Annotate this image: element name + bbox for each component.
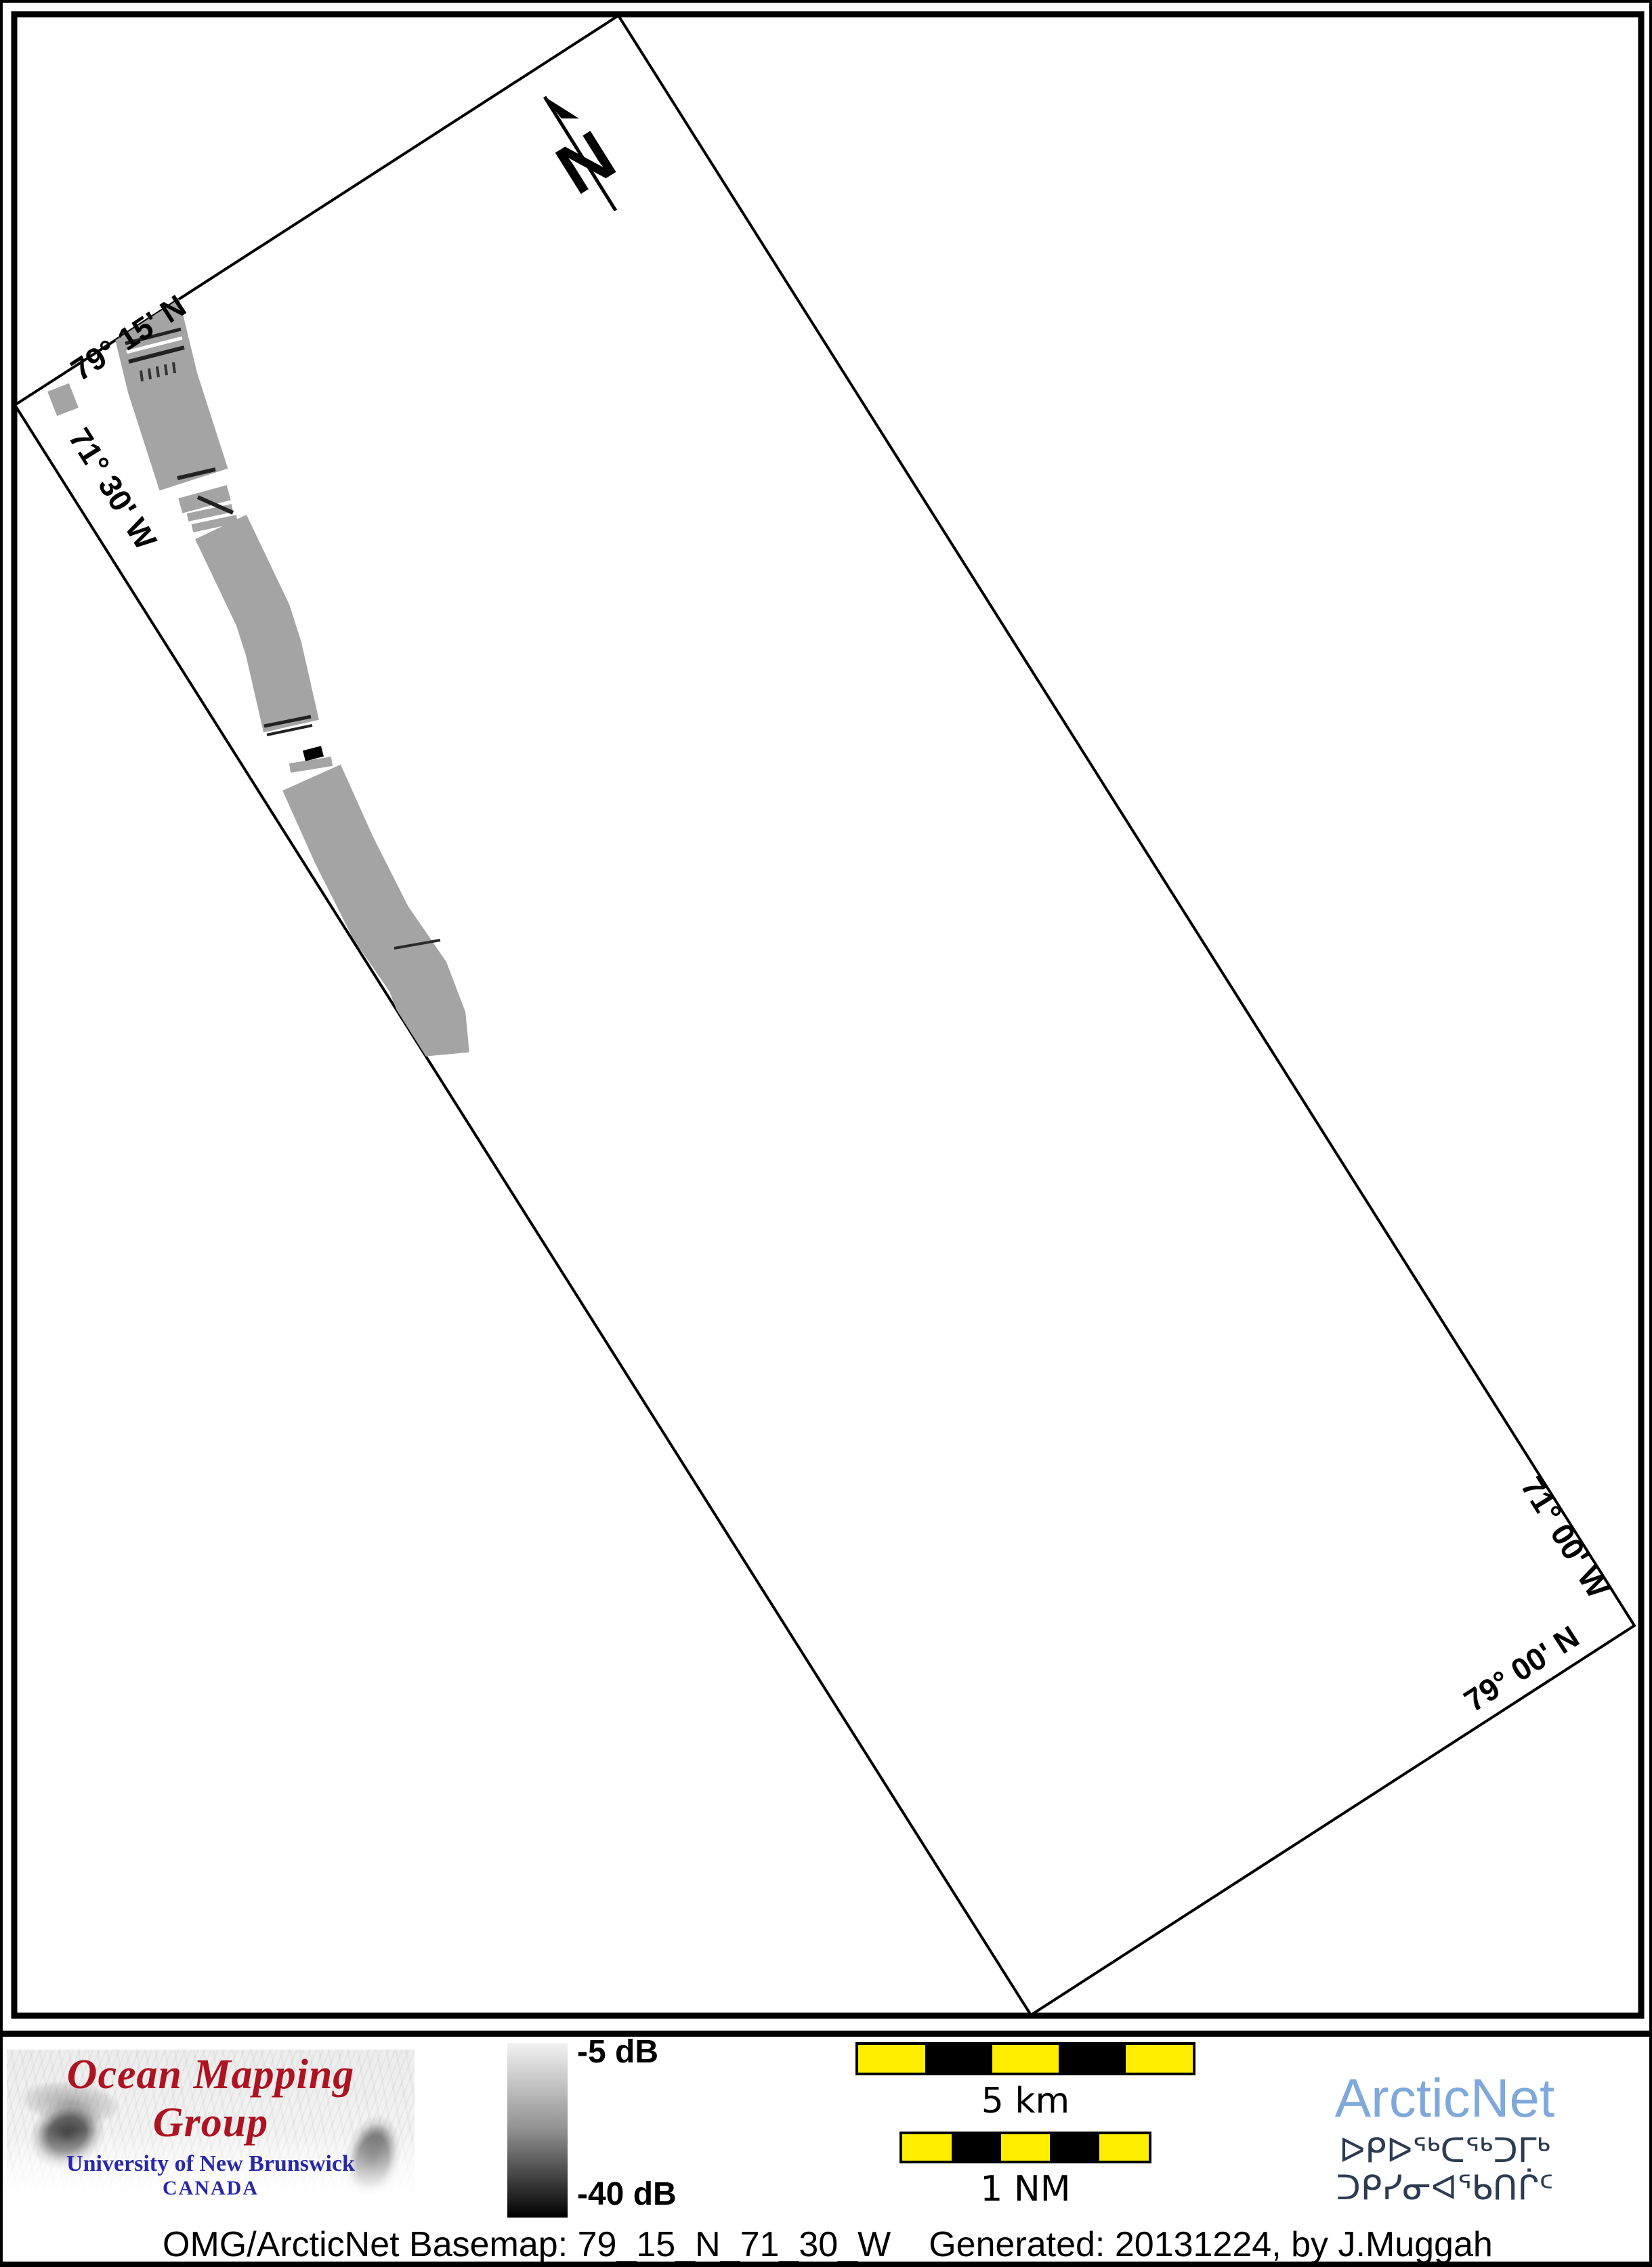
map-canvas: N 79° 15' N 71° 30' W 71° 00' W 79° 00' …	[0, 0, 1652, 2025]
caption-basemap: OMG/ArcticNet Basemap: 79_15_N_71_30_W	[163, 2224, 891, 2265]
omg-logo: Ocean Mapping Group University of New Br…	[7, 2050, 415, 2196]
scalebar-segment	[1099, 2134, 1149, 2161]
panel-separator	[3, 2031, 1649, 2037]
backscatter-colorbar	[507, 2043, 568, 2218]
scalebar-segment	[952, 2134, 1001, 2161]
scalebar-nm-label: 1 NM	[899, 2169, 1151, 2209]
arcticnet-logo: ArcticNet ᐅᑭᐅᖅᑕᖅᑐᒥᒃ ᑐᑭᓯᓂᐊᖃᑎᒌᑦ	[1238, 2069, 1651, 2207]
scalebar-segment	[902, 2134, 952, 2161]
scalebar-segment	[1001, 2134, 1051, 2161]
omg-subtitle: University of New Brunswick	[7, 2151, 415, 2177]
scalebar-segment	[1059, 2045, 1126, 2073]
scalebar-segment	[1126, 2045, 1193, 2073]
scalebar-km	[855, 2042, 1195, 2075]
colorbar-max-label: -5 dB	[577, 2033, 658, 2071]
scalebar-km-label: 5 km	[855, 2081, 1195, 2121]
caption-generated: Generated: 20131224, by J.Muggah	[929, 2224, 1493, 2265]
scalebar-segment	[992, 2045, 1059, 2073]
omg-title: Ocean Mapping Group	[7, 2051, 415, 2147]
scalebar-segment	[925, 2045, 992, 2073]
basemap-sheet: N 79° 15' N 71° 30' W 71° 00' W 79° 00' …	[0, 0, 1652, 2267]
sonar-swath	[27, 271, 488, 1097]
scalebar-segment	[1050, 2134, 1099, 2161]
scalebar-segment	[858, 2045, 925, 2073]
omg-country: CANADA	[7, 2177, 415, 2196]
scalebar-nm	[899, 2132, 1151, 2163]
arcticnet-inuktitut: ᐅᑭᐅᖅᑕᖅᑐᒥᒃ ᑐᑭᓯᓂᐊᖃᑎᒌᑦ	[1238, 2132, 1651, 2207]
sheet-caption: OMG/ArcticNet Basemap: 79_15_N_71_30_W G…	[163, 2224, 1493, 2265]
arcticnet-name: ArcticNet	[1238, 2069, 1651, 2128]
colorbar-min-label: -40 dB	[577, 2176, 677, 2213]
